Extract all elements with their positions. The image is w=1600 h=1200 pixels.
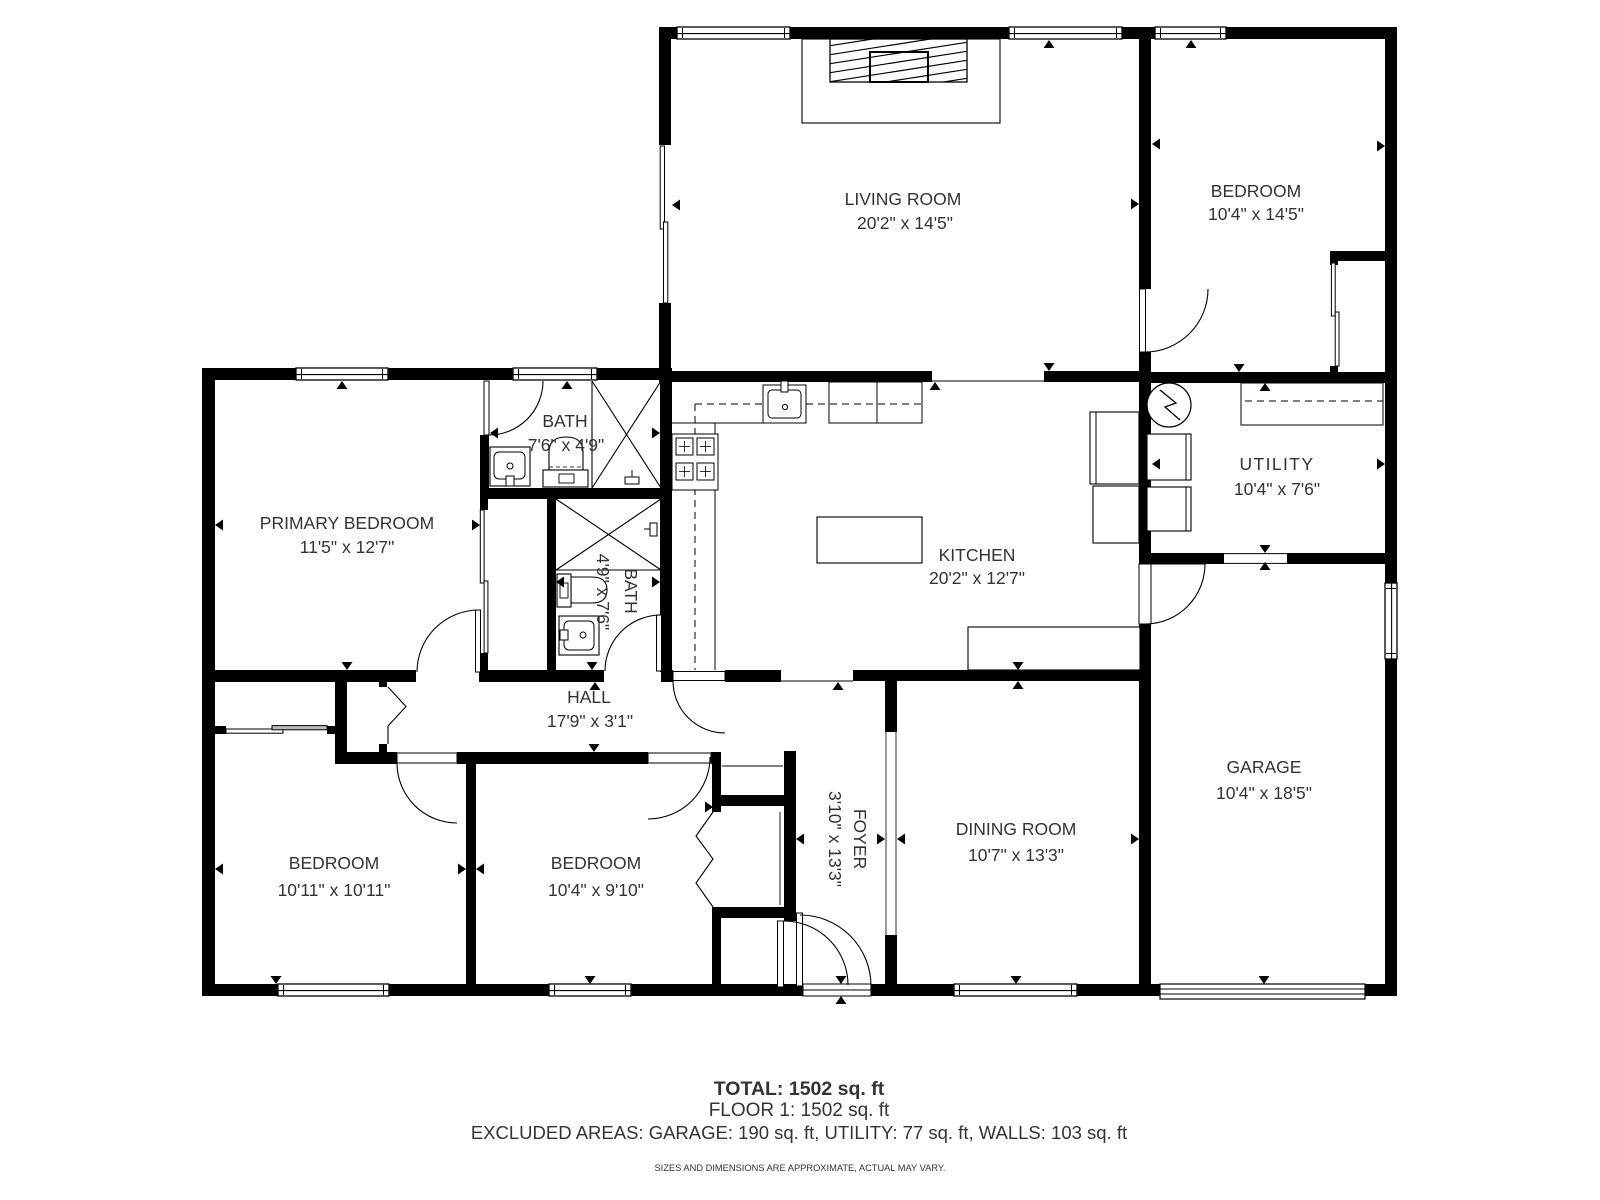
svg-text:10'4" x 9'10": 10'4" x 9'10" (548, 880, 644, 900)
svg-text:4'9" x 7'6": 4'9" x 7'6" (593, 554, 613, 631)
svg-text:20'2" x 14'5": 20'2" x 14'5" (857, 213, 953, 233)
svg-text:7'6" x 4'9": 7'6" x 4'9" (528, 435, 605, 455)
svg-text:SIZES AND DIMENSIONS ARE APPRO: SIZES AND DIMENSIONS ARE APPROXIMATE, AC… (654, 1163, 945, 1173)
svg-text:BEDROOM: BEDROOM (1211, 181, 1301, 201)
svg-text:KITCHEN: KITCHEN (939, 545, 1016, 565)
svg-text:3'10" x 13'3": 3'10" x 13'3" (825, 791, 845, 887)
svg-text:TOTAL: 1502 sq. ft: TOTAL: 1502 sq. ft (714, 1078, 885, 1100)
svg-text:GARAGE: GARAGE (1227, 757, 1302, 777)
svg-text:UTILITY: UTILITY (1240, 454, 1315, 474)
svg-text:10'4" x 14'5": 10'4" x 14'5" (1208, 204, 1304, 224)
svg-text:BATH: BATH (621, 568, 641, 613)
svg-text:FLOOR 1: 1502 sq. ft: FLOOR 1: 1502 sq. ft (709, 1100, 890, 1121)
svg-text:EXCLUDED AREAS: GARAGE: 190 sq: EXCLUDED AREAS: GARAGE: 190 sq. ft, UTIL… (471, 1122, 1127, 1143)
svg-text:BEDROOM: BEDROOM (551, 853, 641, 873)
svg-text:11'5" x 12'7": 11'5" x 12'7" (300, 537, 395, 557)
svg-text:HALL: HALL (567, 687, 611, 707)
svg-text:FOYER: FOYER (850, 809, 870, 869)
svg-text:10'11" x 10'11": 10'11" x 10'11" (278, 880, 391, 900)
svg-text:LIVING ROOM: LIVING ROOM (845, 189, 962, 209)
svg-text:17'9" x 3'1": 17'9" x 3'1" (547, 711, 633, 731)
svg-text:PRIMARY BEDROOM: PRIMARY BEDROOM (260, 513, 434, 533)
svg-text:10'4" x 18'5": 10'4" x 18'5" (1216, 783, 1312, 803)
svg-text:BATH: BATH (542, 411, 587, 431)
svg-text:10'7" x 13'3": 10'7" x 13'3" (968, 845, 1064, 865)
svg-text:10'4" x 7'6": 10'4" x 7'6" (1234, 479, 1320, 499)
svg-text:BEDROOM: BEDROOM (289, 853, 379, 873)
svg-text:DINING ROOM: DINING ROOM (956, 819, 1077, 839)
svg-text:20'2" x 12'7": 20'2" x 12'7" (929, 568, 1025, 588)
